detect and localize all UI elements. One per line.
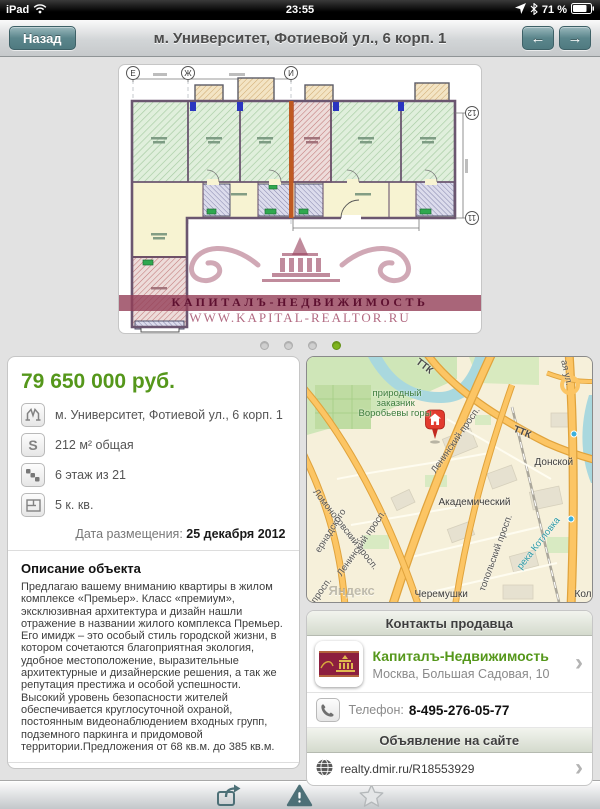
share-icon[interactable] — [216, 784, 241, 807]
nav-bar: Назад м. Университет, Фотиевой ул., 6 ко… — [0, 20, 600, 57]
agency-row[interactable]: Капиталъ-Недвижимость Москва, Большая Са… — [307, 636, 592, 692]
contacts-header: Контакты продавца — [307, 611, 592, 636]
listing-details-card: 79 650 000 руб. м. Университет, Фотиевой… — [7, 356, 300, 769]
next-listing-button[interactable]: → — [559, 26, 591, 50]
agency-name: Капиталъ-Недвижимость — [373, 648, 550, 664]
prev-listing-button[interactable]: ← — [522, 26, 554, 50]
back-button[interactable]: Назад — [9, 26, 76, 50]
publish-date: Дата размещения: 25 декабря 2012 — [21, 527, 286, 541]
grid-label-zh: Ж — [184, 69, 192, 78]
phone-row[interactable]: Телефон: 8-495-276-05-77 — [307, 692, 592, 727]
description-title: Описание объекта — [21, 561, 286, 576]
clock: 23:55 — [0, 4, 600, 16]
page-dot[interactable] — [260, 341, 269, 350]
price: 79 650 000 руб. — [21, 370, 286, 394]
page-dot-active[interactable] — [332, 341, 341, 350]
attr-text: м. Университет, Фотиевой ул., 6 корп. 1 — [55, 408, 283, 422]
description-text: Предлагаю вашему вниманию квартиры в жил… — [21, 581, 286, 753]
seller-contacts-card: Контакты продавца — [306, 610, 593, 786]
publish-date-value: 25 декабря 2012 — [186, 527, 285, 541]
attr-text: 6 этаж из 21 — [55, 468, 126, 482]
grid-label-12: 12 — [467, 108, 476, 117]
site-header: Объявление на сайте — [307, 727, 592, 753]
battery-icon — [571, 3, 594, 17]
phone-icon — [316, 698, 340, 722]
attr-text: 212 м² общая — [55, 438, 134, 452]
status-bar: iPad 23:55 71 % — [0, 0, 600, 20]
attr-row-rooms: 5 к. кв. — [21, 493, 286, 517]
attr-row-metro: м. Университет, Фотиевой ул., 6 корп. 1 — [21, 403, 286, 427]
phone-number: 8-495-276-05-77 — [409, 703, 510, 718]
map-graphic — [307, 357, 593, 602]
report-icon[interactable] — [286, 784, 313, 807]
grid-label-e: Е — [130, 69, 135, 78]
grid-label-i: И — [288, 69, 294, 78]
map[interactable]: ТТК ТТК природный заказник Воробьевы гор… — [306, 356, 593, 603]
attr-row-area: S 212 м² общая — [21, 433, 286, 457]
site-url: realty.dmir.ru/R18553929 — [341, 762, 475, 776]
rooms-icon — [21, 493, 45, 517]
battery-percent: 71 % — [542, 4, 567, 16]
agency-address: Москва, Большая Садовая, 10 — [373, 667, 550, 681]
page-dot[interactable] — [308, 341, 317, 350]
page-dot[interactable] — [284, 341, 293, 350]
area-icon: S — [21, 433, 45, 457]
grid-label-11: 11 — [467, 213, 476, 222]
page-title: м. Университет, Фотиевой ул., 6 корп. 1 — [154, 30, 447, 47]
chevron-right-icon: › — [575, 649, 583, 677]
floorplan-photo[interactable]: Е Ж И 12 11 — [118, 64, 482, 334]
metro-icon — [21, 403, 45, 427]
site-row[interactable]: realty.dmir.ru/R18553929 › — [307, 753, 592, 785]
floor-icon — [21, 463, 45, 487]
content-area: Е Ж И 12 11 — [0, 64, 600, 780]
photo-pager — [0, 337, 600, 353]
attr-text: 5 к. кв. — [55, 498, 93, 512]
chevron-right-icon: › — [575, 754, 583, 782]
globe-icon — [316, 759, 333, 779]
phone-label: Телефон: — [349, 703, 404, 717]
floorplan-drawing: Е Ж И 12 11 — [119, 65, 481, 333]
attr-row-floor: 6 этаж из 21 — [21, 463, 286, 487]
favorite-icon[interactable] — [358, 783, 385, 808]
location-icon — [515, 3, 526, 17]
agency-logo — [315, 641, 363, 687]
bluetooth-icon — [530, 3, 538, 18]
